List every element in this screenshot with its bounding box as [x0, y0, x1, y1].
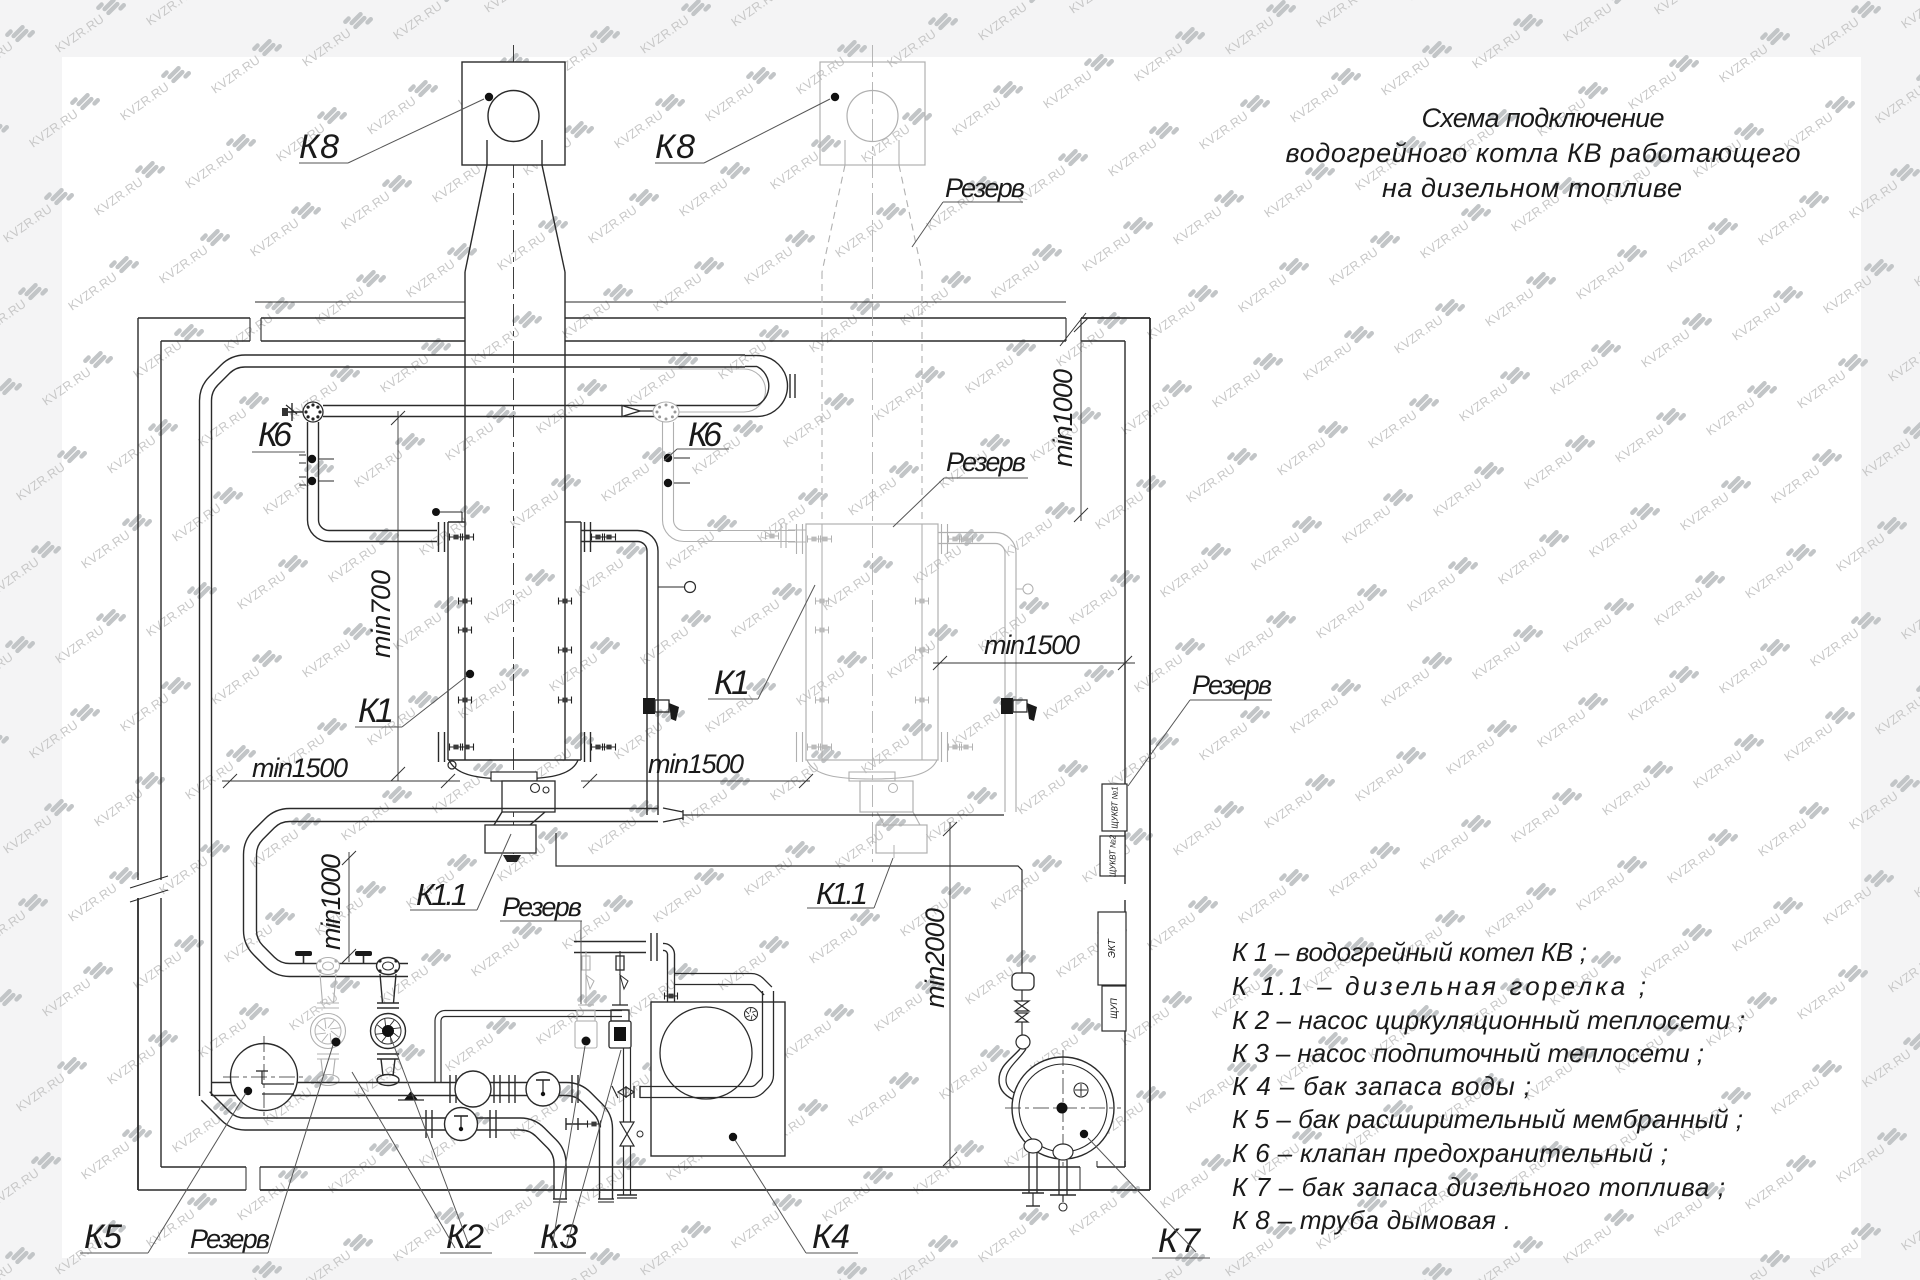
svg-text:К 1 – водогрейный котел КВ ;: К 1 – водогрейный котел КВ ;: [1232, 937, 1587, 967]
svg-text:ЭКТ: ЭКТ: [1107, 938, 1118, 958]
svg-text:К 3 – насос подпиточный тепло: К 3 – насос подпиточный теплосети ;: [1232, 1038, 1704, 1068]
svg-text:min2000: min2000: [920, 908, 950, 1008]
svg-text:ЩУП: ЩУП: [1109, 998, 1119, 1019]
svg-text:К 6 – клапан предохранительны: К 6 – клапан предохранительный ;: [1232, 1138, 1668, 1168]
svg-text:К6: К6: [258, 416, 292, 454]
svg-text:К5: К5: [84, 1218, 122, 1256]
svg-text:Резерв: Резерв: [945, 173, 1025, 203]
svg-text:К 1.1 – дизельная горелка ;: К 1.1 – дизельная горелка ;: [1232, 971, 1646, 1001]
svg-text:Резерв: Резерв: [190, 1224, 270, 1254]
svg-text:К2: К2: [446, 1218, 484, 1256]
svg-text:ЩУКВТ №2: ЩУКВТ №2: [1109, 834, 1118, 877]
svg-text:min1500: min1500: [984, 630, 1080, 660]
svg-text:Резерв: Резерв: [946, 447, 1026, 477]
svg-text:min1500: min1500: [252, 753, 348, 783]
svg-text:Резерв: Резерв: [1192, 670, 1272, 700]
svg-text:К 7 – бак запаса дизельного т: К 7 – бак запаса дизельного топлива ;: [1232, 1172, 1725, 1202]
svg-text:К 2 – насос циркуляционный те: К 2 – насос циркуляционный теплосети ;: [1232, 1005, 1745, 1035]
svg-text:К 8 – труба дымовая .: К 8 – труба дымовая .: [1232, 1205, 1511, 1235]
svg-text:водогрейного котла КВ работающ: водогрейного котла КВ работающего: [1286, 138, 1801, 168]
svg-text:К1: К1: [358, 692, 394, 730]
svg-text:Схема подключение: Схема подключение: [1422, 103, 1665, 133]
svg-text:ЩУКВТ №1: ЩУКВТ №1: [1111, 786, 1120, 828]
svg-text:К 5 – бак расширительный мемб: К 5 – бак расширительный мембранный ;: [1232, 1104, 1743, 1134]
svg-text:на дизельном топливе: на дизельном топливе: [1382, 173, 1682, 203]
svg-text:К6: К6: [688, 416, 722, 454]
svg-text:К1.1: К1.1: [816, 876, 868, 911]
svg-text:К1.1: К1.1: [416, 877, 468, 912]
svg-text:К1: К1: [714, 664, 750, 702]
svg-text:Резерв: Резерв: [502, 892, 582, 922]
svg-text:min1000: min1000: [1048, 369, 1078, 467]
svg-text:К4: К4: [812, 1218, 850, 1256]
svg-text:min1000: min1000: [316, 854, 346, 950]
svg-text:К8: К8: [655, 128, 695, 166]
svg-text:min700: min700: [366, 570, 396, 658]
svg-text:К8: К8: [299, 128, 339, 166]
svg-text:min1500: min1500: [648, 749, 744, 779]
svg-text:К 4 – бак запаса воды ;: К 4 – бак запаса воды ;: [1232, 1071, 1531, 1101]
